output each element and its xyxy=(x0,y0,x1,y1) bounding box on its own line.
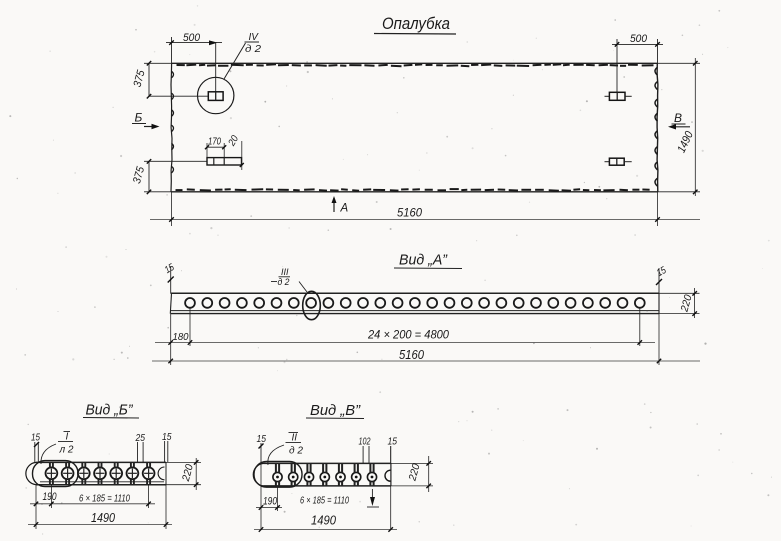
svg-text:Вид „Б”: Вид „Б” xyxy=(86,402,134,419)
svg-text:Б: Б xyxy=(135,111,143,125)
svg-text:20: 20 xyxy=(226,133,241,148)
svg-text:180: 180 xyxy=(173,331,189,343)
svg-text:170: 170 xyxy=(208,137,221,148)
svg-text:1490: 1490 xyxy=(91,510,116,525)
svg-text:375: 375 xyxy=(132,68,148,88)
svg-text:220: 220 xyxy=(180,463,196,484)
svg-text:Вид „А”: Вид „А” xyxy=(399,252,448,269)
svg-text:III: III xyxy=(281,267,289,277)
svg-text:190: 190 xyxy=(263,496,278,508)
svg-text:А: А xyxy=(340,203,349,215)
svg-text:500: 500 xyxy=(630,33,648,45)
svg-text:Вид „В”: Вид „В” xyxy=(310,402,361,419)
svg-text:1490: 1490 xyxy=(311,513,337,528)
svg-text:IV: IV xyxy=(249,32,260,43)
svg-text:15: 15 xyxy=(163,262,177,276)
svg-text:д 2: д 2 xyxy=(289,446,303,457)
svg-text:15: 15 xyxy=(655,265,669,279)
svg-text:II: II xyxy=(292,433,298,444)
svg-text:15: 15 xyxy=(31,432,40,444)
svg-text:190: 190 xyxy=(43,491,58,503)
svg-text:220: 220 xyxy=(678,293,694,314)
svg-text:д 2: д 2 xyxy=(245,44,261,55)
svg-text:6 × 185 = 1110: 6 × 185 = 1110 xyxy=(300,495,349,507)
svg-text:15: 15 xyxy=(388,436,398,448)
svg-text:5160: 5160 xyxy=(397,206,422,220)
svg-text:102: 102 xyxy=(359,436,371,448)
svg-text:В: В xyxy=(674,111,682,125)
svg-text:24 × 200 = 4800: 24 × 200 = 4800 xyxy=(367,328,449,342)
svg-text:1490: 1490 xyxy=(676,129,696,154)
svg-text:220: 220 xyxy=(406,462,422,483)
svg-text:I: I xyxy=(66,432,69,443)
svg-text:375: 375 xyxy=(131,165,147,185)
svg-text:л 2: л 2 xyxy=(58,445,73,456)
svg-text:5160: 5160 xyxy=(399,347,425,362)
svg-text:25: 25 xyxy=(135,432,145,444)
svg-text:д 2: д 2 xyxy=(278,277,291,288)
svg-text:6 × 185 = 1110: 6 × 185 = 1110 xyxy=(79,493,130,505)
svg-text:Опалубка: Опалубка xyxy=(382,14,450,33)
svg-text:500: 500 xyxy=(183,32,201,44)
svg-text:15: 15 xyxy=(162,431,172,443)
